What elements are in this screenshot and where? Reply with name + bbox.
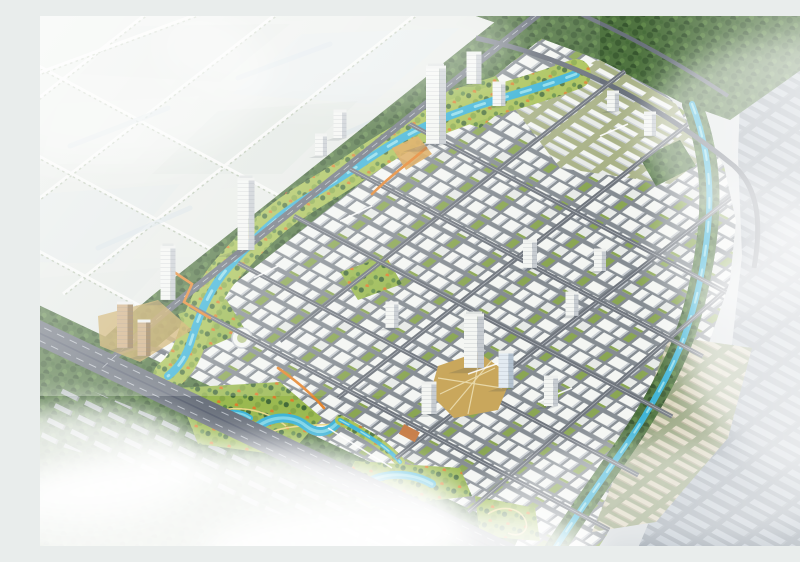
aerial-city-rendering	[40, 16, 800, 546]
render-canvas	[40, 16, 800, 546]
